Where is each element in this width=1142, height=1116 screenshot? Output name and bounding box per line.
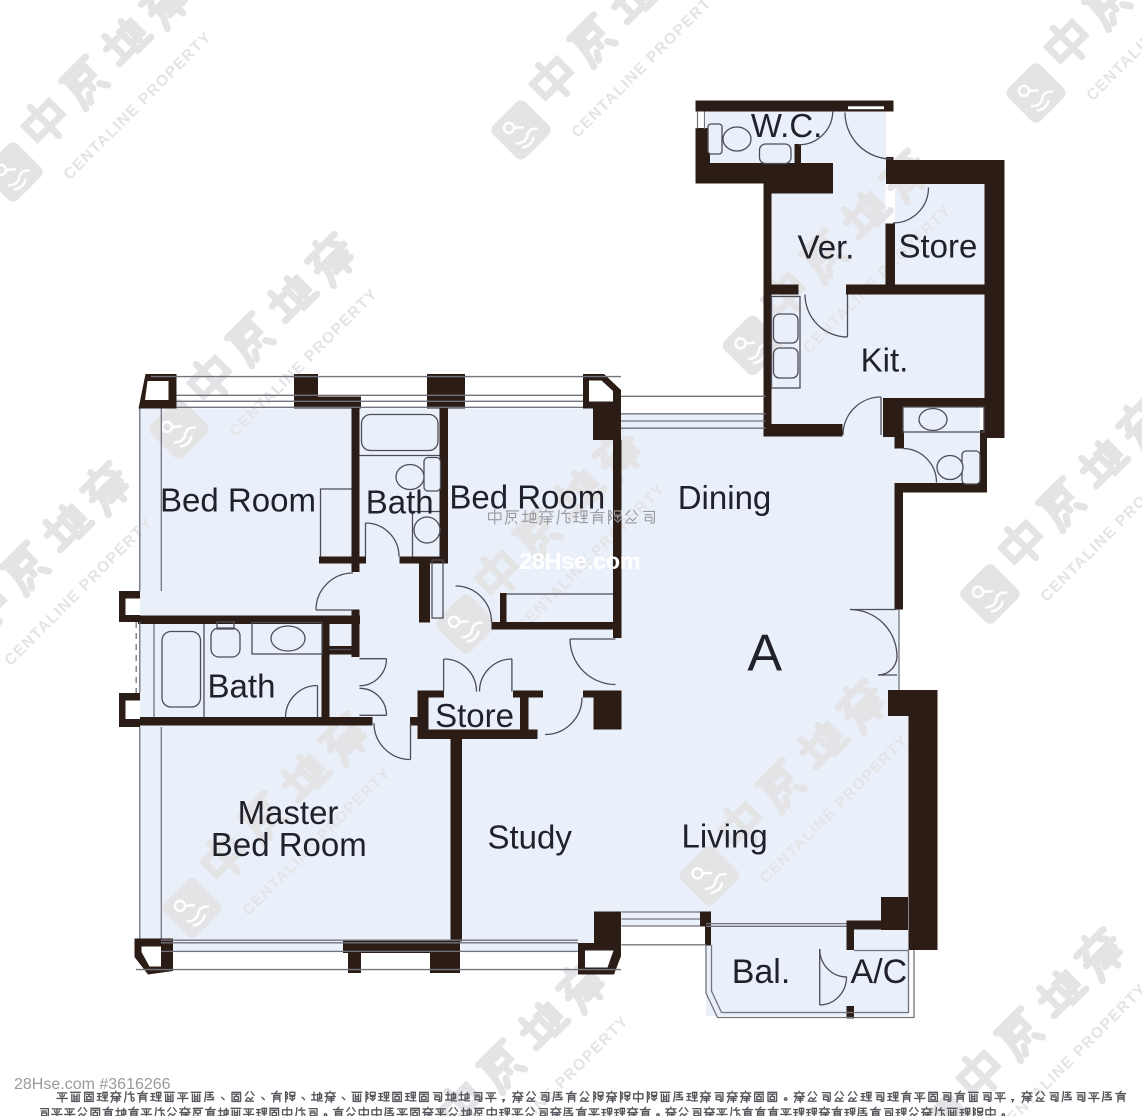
svg-text:28Hse.com: 28Hse.com <box>519 548 640 574</box>
svg-text:Bed Room: Bed Room <box>160 482 316 519</box>
svg-text:A: A <box>747 625 782 683</box>
svg-text:Living: Living <box>681 818 767 855</box>
svg-text:Dining: Dining <box>678 479 772 516</box>
svg-text:Bath: Bath <box>208 668 276 705</box>
svg-text:Bed Room: Bed Room <box>449 479 605 516</box>
svg-text:Kit.: Kit. <box>861 342 909 379</box>
svg-text:Bal.: Bal. <box>732 953 791 991</box>
svg-text:Ver.: Ver. <box>798 229 855 266</box>
svg-text:Bath: Bath <box>366 484 434 521</box>
svg-text:A/C: A/C <box>851 953 908 991</box>
svg-text:Store: Store <box>435 697 514 734</box>
svg-text:Bed Room: Bed Room <box>211 826 367 863</box>
svg-text:28Hse.com #3616266: 28Hse.com #3616266 <box>14 1076 171 1093</box>
svg-text:W.C.: W.C. <box>751 107 823 144</box>
svg-text:Study: Study <box>488 819 573 856</box>
svg-text:Store: Store <box>898 228 977 265</box>
